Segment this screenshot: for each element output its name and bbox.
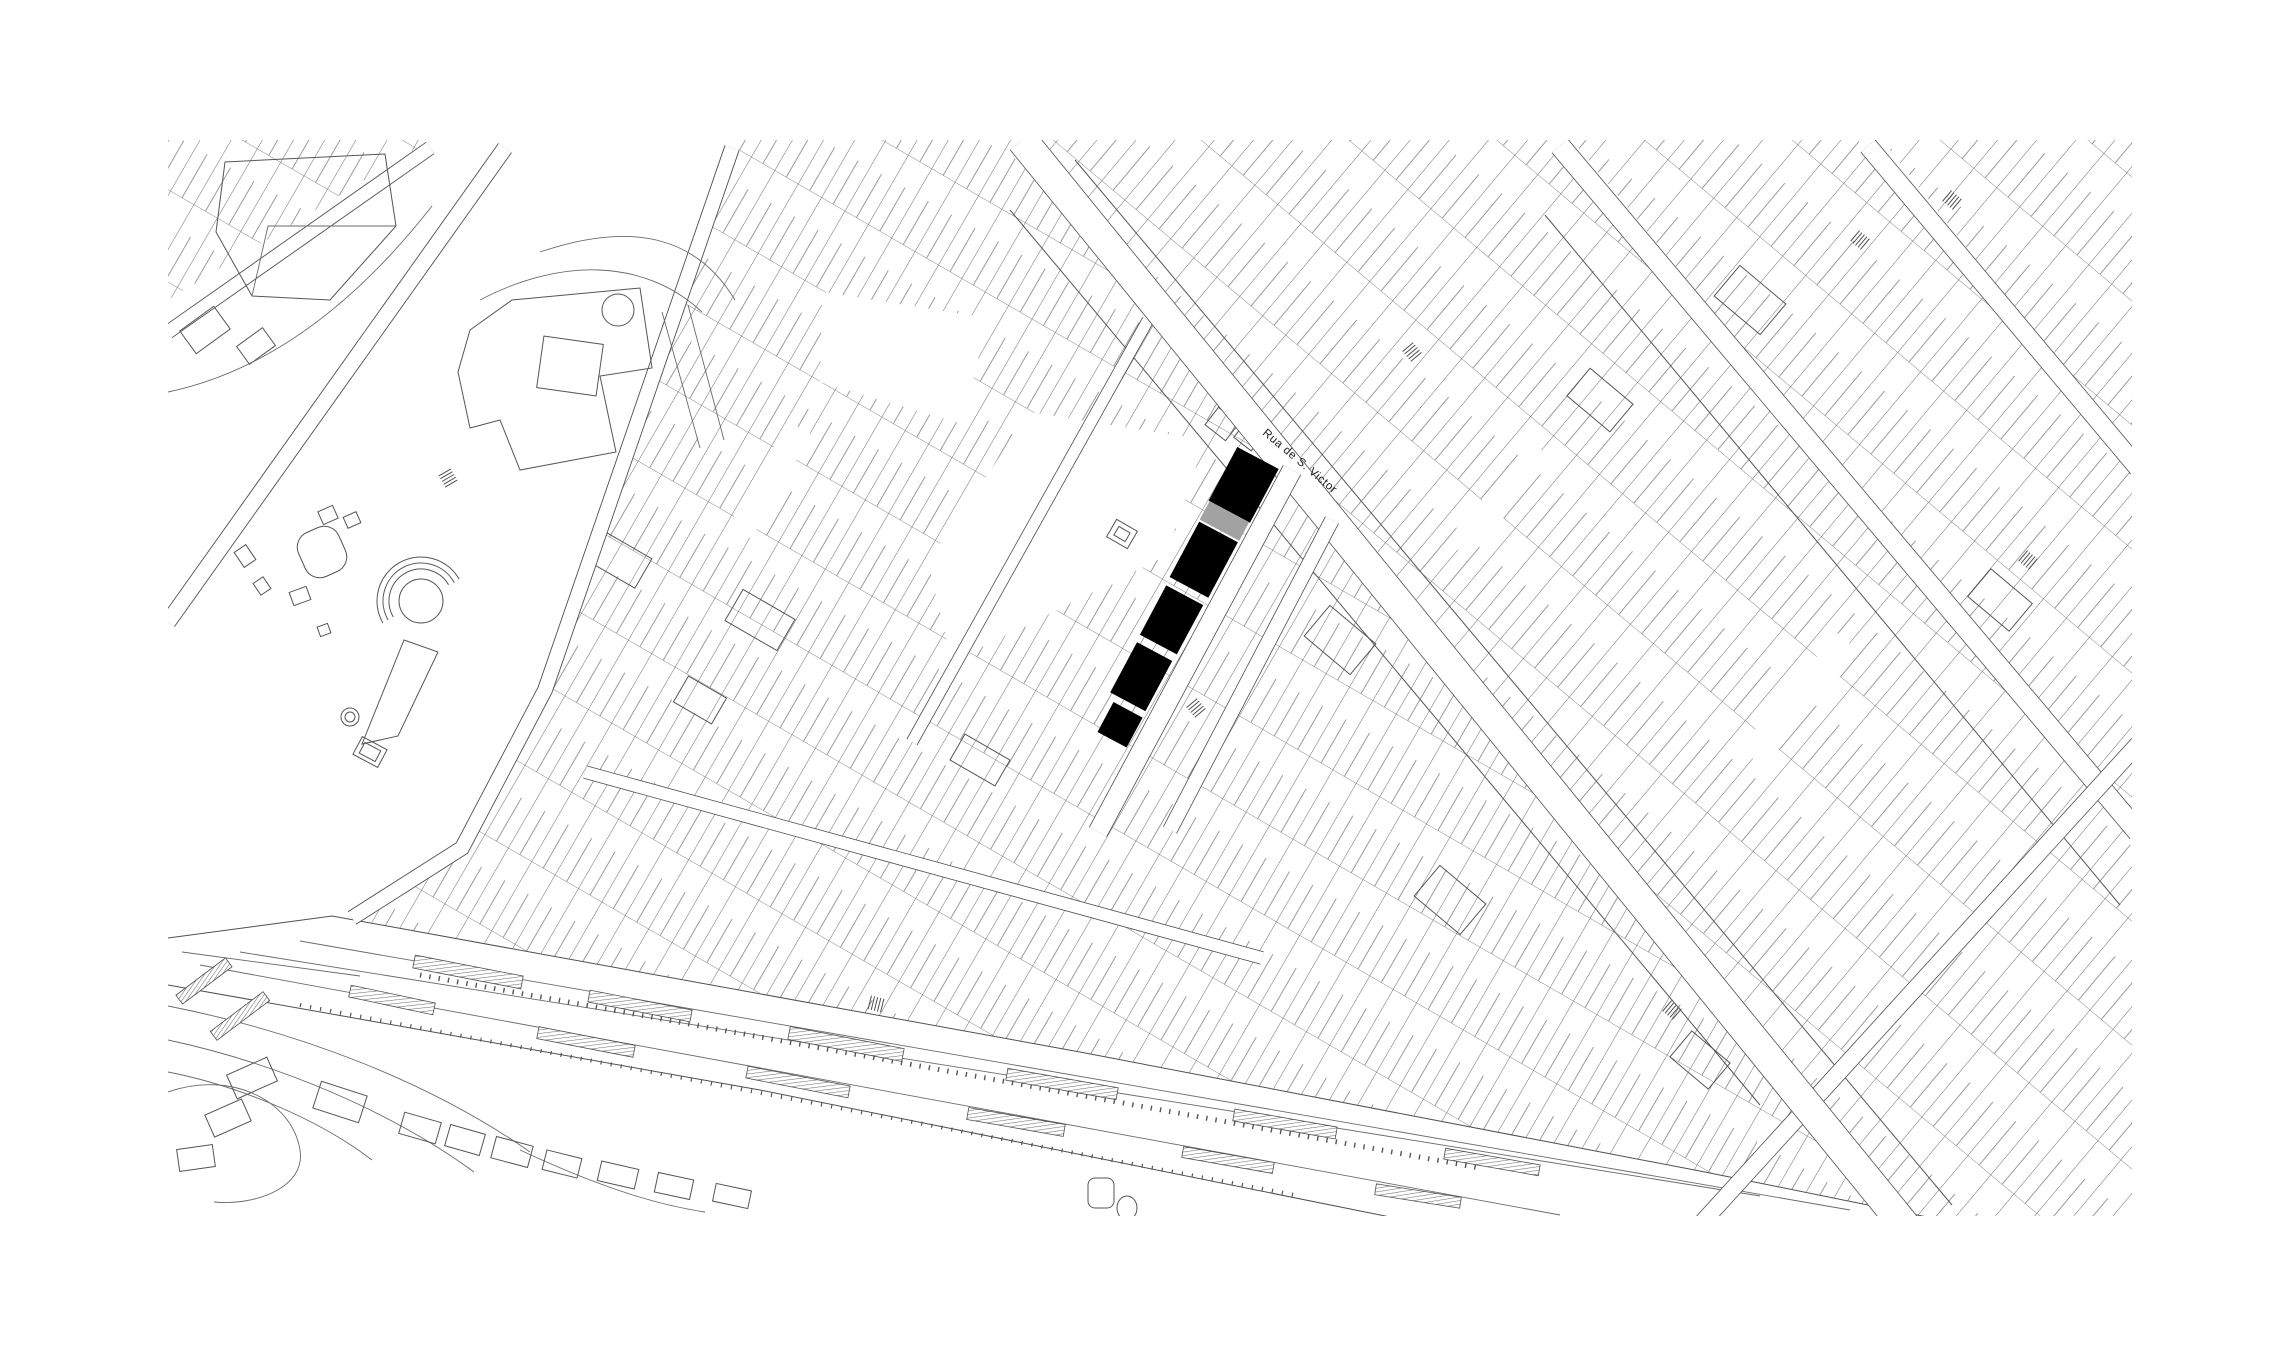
block-northwest-corner <box>168 140 430 300</box>
map-canvas: Rua de S. Victor <box>0 0 2278 1365</box>
stairs-icon <box>439 469 458 487</box>
site-plan-map: Rua de S. Victor <box>0 0 2278 1365</box>
fountain-circle <box>399 579 443 623</box>
railway-platform <box>210 992 269 1041</box>
